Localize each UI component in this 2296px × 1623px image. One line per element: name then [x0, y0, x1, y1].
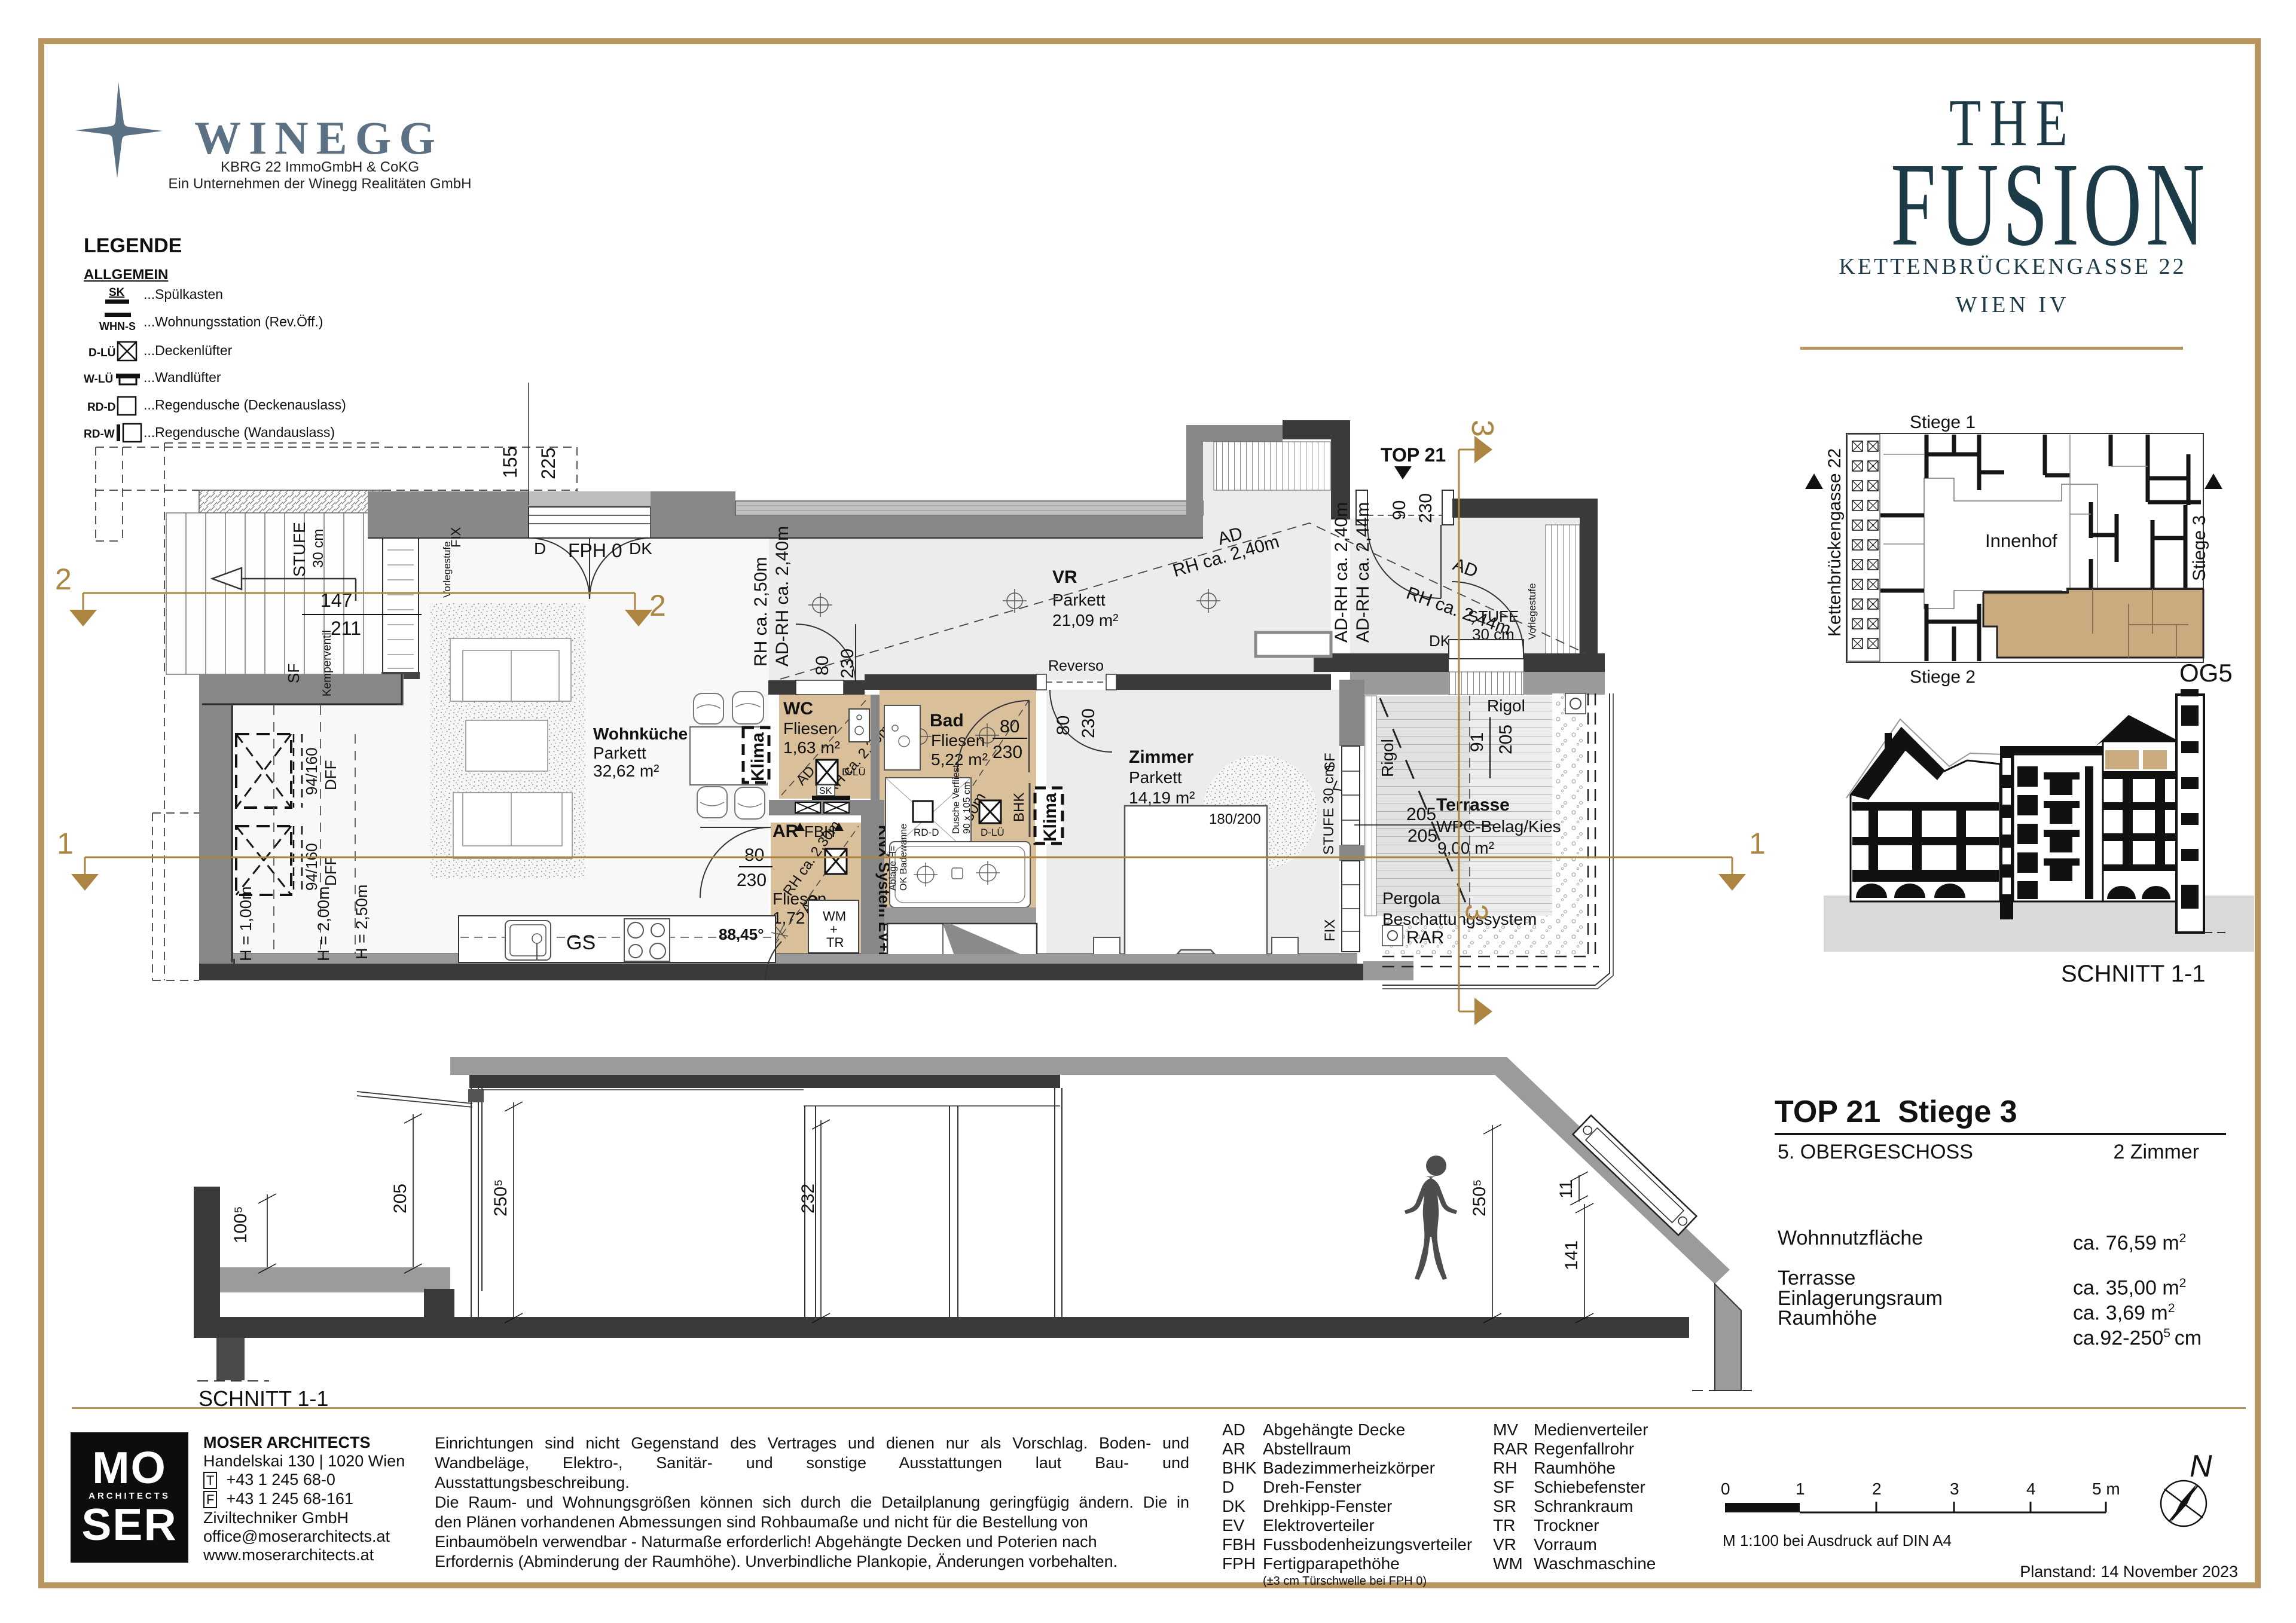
svg-text:GS: GS [566, 931, 596, 954]
svg-text:WC: WC [783, 699, 813, 719]
svg-text:155: 155 [499, 447, 521, 478]
svg-text:1: 1 [1796, 1480, 1805, 1498]
svg-text:DK: DK [1429, 632, 1451, 650]
svg-text:205: 205 [390, 1184, 410, 1214]
svg-text:80: 80 [813, 656, 832, 676]
svg-text:3: 3 [1465, 420, 1500, 437]
svg-text:80: 80 [1000, 717, 1019, 736]
svg-text:250⁵: 250⁵ [491, 1179, 511, 1217]
svg-text:SF: SF [285, 664, 303, 683]
svg-text:230: 230 [737, 870, 767, 890]
svg-text:M 1:100 bei Ausdruck auf DIN A: M 1:100 bei Ausdruck auf DIN A4 [1723, 1532, 1952, 1549]
svg-text:RH ca. 2,50m: RH ca. 2,50m [751, 557, 771, 667]
svg-text:Kemperventil: Kemperventil [321, 630, 334, 696]
svg-text:Klima: Klima [1040, 793, 1060, 842]
svg-text:Stiege 3: Stiege 3 [2190, 515, 2209, 581]
svg-text:94/160: 94/160 [303, 747, 320, 795]
svg-text:4: 4 [2026, 1480, 2036, 1498]
svg-text:Reverso: Reverso [1048, 658, 1104, 674]
svg-text:32,62 m²: 32,62 m² [593, 762, 660, 780]
svg-text:OG5: OG5 [2179, 659, 2233, 687]
svg-text:2: 2 [1872, 1480, 1882, 1498]
svg-text:225: 225 [538, 448, 559, 479]
svg-text:1: 1 [1749, 827, 1766, 860]
svg-text:Rigol: Rigol [1378, 739, 1397, 777]
svg-text:1: 1 [57, 827, 74, 860]
svg-text:Innenhof: Innenhof [1985, 530, 2057, 551]
svg-text:Dusche Verfliest: Dusche Verfliest [951, 765, 961, 834]
svg-text:DFF: DFF [322, 855, 340, 886]
svg-text:9,00 m²: 9,00 m² [1437, 839, 1494, 857]
svg-text:H = 2,50m: H = 2,50m [353, 885, 371, 959]
svg-text:Terrasse: Terrasse [1436, 795, 1510, 815]
svg-text:AD-RH ca. 2,40m: AD-RH ca. 2,40m [773, 526, 792, 667]
svg-text:Bad: Bad [930, 711, 964, 730]
svg-text:DFF: DFF [322, 760, 340, 790]
svg-text:Wohnküche: Wohnküche [593, 725, 688, 743]
svg-text:230: 230 [1416, 493, 1436, 523]
svg-text:FIX: FIX [1322, 919, 1338, 942]
svg-text:Fliesen: Fliesen [783, 719, 837, 738]
svg-text:230: 230 [838, 649, 857, 678]
svg-text:230: 230 [1079, 708, 1098, 738]
svg-text:14,19 m²: 14,19 m² [1129, 788, 1195, 807]
svg-text:N: N [2190, 1449, 2212, 1484]
svg-text:230: 230 [993, 742, 1022, 762]
svg-text:Vorlegestufe: Vorlegestufe [1526, 583, 1538, 640]
svg-text:2: 2 [649, 589, 666, 622]
svg-text:Stiege 2: Stiege 2 [1910, 667, 1976, 687]
svg-text:1,63 m²: 1,63 m² [783, 738, 840, 757]
svg-text:AD-RH ca. 2,44m: AD-RH ca. 2,44m [1353, 502, 1373, 643]
svg-text:11: 11 [1556, 1180, 1576, 1199]
svg-text:3: 3 [1459, 904, 1494, 921]
svg-text:FPH 0: FPH 0 [568, 540, 622, 561]
svg-text:Kettenbrückengasse 22: Kettenbrückengasse 22 [1825, 448, 1845, 637]
svg-text:80: 80 [1054, 716, 1073, 735]
svg-text:Fliesen: Fliesen [931, 731, 985, 750]
svg-text:Pergola: Pergola [1382, 889, 1440, 907]
svg-text:AR: AR [773, 821, 799, 841]
svg-text:Klima: Klima [748, 732, 768, 781]
svg-text:Parkett: Parkett [1052, 591, 1106, 609]
svg-text:STUFE 30 cm: STUFE 30 cm [1321, 765, 1337, 855]
svg-text:90 x 105 cm: 90 x 105 cm [962, 782, 972, 834]
svg-text:30 cm: 30 cm [310, 529, 326, 568]
svg-text:RD-D: RD-D [914, 827, 939, 838]
svg-text:21,09 m²: 21,09 m² [1052, 611, 1119, 629]
svg-text:0: 0 [1721, 1480, 1730, 1498]
svg-text:BHK: BHK [1011, 793, 1027, 822]
svg-text:90: 90 [1390, 500, 1409, 520]
svg-text:Vorlegestufe: Vorlegestufe [441, 541, 453, 598]
svg-text:SK: SK [819, 786, 832, 796]
svg-text:DK: DK [629, 539, 652, 558]
svg-text:AD-RH ca. 2,40m: AD-RH ca. 2,40m [1332, 502, 1351, 643]
svg-text:VR: VR [1052, 567, 1077, 587]
svg-text:205: 205 [1496, 725, 1516, 754]
svg-text:232: 232 [798, 1184, 818, 1214]
svg-text:94/160: 94/160 [303, 843, 320, 891]
svg-text:TR: TR [826, 935, 844, 950]
svg-text:2: 2 [55, 563, 72, 596]
svg-text:91: 91 [1467, 732, 1487, 752]
svg-text:D-LÜ: D-LÜ [981, 827, 1004, 838]
svg-text:5 m: 5 m [2092, 1480, 2120, 1498]
svg-text:211: 211 [331, 618, 361, 639]
svg-text:100⁵: 100⁵ [231, 1206, 251, 1244]
svg-text:205: 205 [1407, 826, 1437, 846]
svg-text:Rigol: Rigol [1487, 696, 1525, 715]
svg-text:SCHNITT 1-1: SCHNITT 1-1 [2061, 961, 2206, 987]
svg-text:250⁵: 250⁵ [1470, 1179, 1489, 1217]
svg-text:3: 3 [1950, 1480, 1959, 1498]
svg-text:Parkett: Parkett [593, 744, 646, 762]
svg-text:TOP 21: TOP 21 [1381, 444, 1446, 466]
svg-text:H = 2,00m: H = 2,00m [315, 887, 332, 961]
svg-text:Zimmer: Zimmer [1129, 747, 1194, 767]
svg-text:SCHNITT 1-1: SCHNITT 1-1 [199, 1386, 328, 1411]
svg-text:88,45°: 88,45° [719, 925, 764, 943]
svg-text:Parkett: Parkett [1129, 768, 1182, 787]
svg-text:D-LÜ: D-LÜ [842, 766, 866, 778]
svg-text:WPC-Belag/Kies: WPC-Belag/Kies [1436, 817, 1561, 836]
svg-text:STUFE: STUFE [290, 522, 309, 577]
svg-text:180/200: 180/200 [1209, 811, 1261, 827]
svg-text:D: D [534, 539, 546, 558]
svg-text:80: 80 [744, 845, 764, 865]
svg-text:Stiege 1: Stiege 1 [1910, 412, 1976, 432]
svg-text:141: 141 [1562, 1240, 1581, 1270]
svg-text:H = 1,00m: H = 1,00m [237, 887, 255, 961]
svg-text:RAR: RAR [1406, 928, 1444, 947]
svg-text:Ablage H=: Ablage H= [888, 846, 898, 891]
svg-text:205: 205 [1406, 805, 1436, 824]
